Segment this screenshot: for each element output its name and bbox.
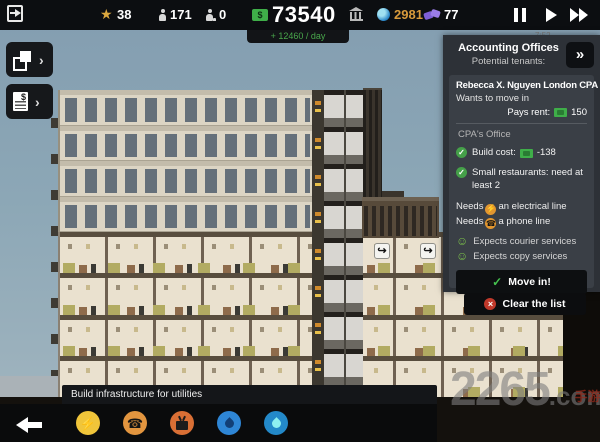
unit-type: CPA's Office — [458, 129, 587, 140]
money-icon — [554, 108, 567, 117]
chevron-right-icon: › — [39, 53, 44, 67]
unfinished-floors[interactable] — [58, 90, 312, 232]
clear-x-icon: × — [484, 298, 496, 310]
electricity-tool-button[interactable]: ⚡ — [76, 411, 100, 435]
concrete-floor[interactable] — [60, 197, 312, 233]
tv-icon — [176, 421, 188, 430]
mechanical-roof — [362, 197, 439, 238]
rent-label: Pays rent: — [507, 107, 550, 118]
need-row: Needs☎a phone line — [456, 215, 587, 230]
scaffolding — [51, 92, 58, 397]
elevator-shaft[interactable] — [312, 90, 363, 397]
water-tool-button[interactable] — [217, 411, 241, 435]
tenant-status: Wants to move in — [456, 93, 587, 104]
need-prefix: Needs — [456, 201, 483, 212]
play-button[interactable] — [546, 8, 557, 22]
site-watermark: 2265.com 手游网 — [450, 362, 600, 417]
panel-subtitle: Potential tenants: — [449, 56, 568, 67]
need-prefix: Needs — [456, 216, 483, 227]
influence-value: 2981 — [394, 7, 423, 22]
population-icon — [158, 9, 167, 21]
money-icon — [520, 149, 533, 158]
finance-panel-button[interactable]: › — [6, 84, 53, 119]
bank-icon[interactable] — [350, 12, 363, 21]
chevron-right-icon: › — [35, 95, 40, 109]
exit-button[interactable] — [7, 5, 23, 22]
smiley-icon: ☺ — [456, 251, 468, 262]
game-screen: ↪ ↪ ★ 38 171 0 $ 73540 2981 77 7:52 + 12… — [0, 0, 600, 442]
fast-forward-button[interactable] — [570, 8, 588, 22]
elevator-doors — [324, 90, 363, 397]
rent-value: 150 — [571, 107, 587, 118]
back-button[interactable] — [16, 417, 42, 433]
annex-tower — [363, 88, 382, 200]
watermark-cn: 手游网 — [574, 386, 600, 405]
income-per-day: + 12460 / day — [247, 30, 349, 43]
check-circle-icon: ✓ — [456, 167, 467, 178]
population-value: 171 — [170, 7, 192, 22]
needs-list: Needs⚡an electrical line Needs☎a phone l… — [456, 200, 587, 229]
divider — [456, 123, 587, 124]
tenant-rent: Pays rent: 150 — [456, 107, 587, 118]
prestige-value: 38 — [117, 7, 131, 22]
need-item: a phone line — [498, 216, 550, 227]
tenant-name: Rebecca X. Nguyen London CPA — [456, 80, 587, 91]
smiley-icon: ☺ — [456, 236, 468, 247]
cable-tv-tool-button[interactable] — [170, 411, 194, 435]
build-cost-label: Build cost: — [472, 147, 516, 159]
deals-handshake-icon — [424, 8, 441, 21]
move-in-label: Move in! — [508, 276, 551, 288]
build-cost-value: -138 — [537, 147, 556, 159]
clear-list-label: Clear the list — [502, 298, 565, 310]
vacancy-sign-icon[interactable]: ↪ — [420, 243, 436, 259]
phone-icon: ☎ — [485, 218, 496, 229]
need-row: Needs⚡an electrical line — [456, 200, 587, 215]
electricity-icon: ⚡ — [485, 204, 496, 215]
tenant-panel: Accounting Offices Potential tenants: » … — [443, 35, 600, 292]
deals-value: 77 — [444, 7, 458, 22]
exit-door-icon — [7, 5, 23, 22]
floors-panel-button[interactable]: › — [6, 42, 53, 77]
influence-orb-icon — [377, 8, 390, 21]
concrete-floor[interactable] — [60, 161, 312, 197]
expect-text: Expects copy services — [473, 251, 567, 262]
phone-tool-button[interactable]: ☎ — [123, 411, 147, 435]
invoice-icon — [13, 92, 28, 111]
water-drop-icon — [223, 417, 236, 430]
phone-icon: ☎ — [127, 417, 143, 430]
requirement-row: ✓ Small restaurants: need at least 2 — [456, 167, 587, 192]
requirement-text: Small restaurants: need at least 2 — [472, 167, 587, 192]
prestige-star-icon: ★ — [100, 7, 113, 21]
elevator-call-lights — [312, 90, 324, 397]
expect-row: ☺ Expects courier services — [456, 236, 587, 247]
pause-button[interactable] — [514, 8, 526, 22]
move-in-button[interactable]: ✓ Move in! — [456, 270, 587, 294]
expand-panel-button[interactable]: » — [566, 42, 594, 68]
build-cost-row: ✓ Build cost: -138 — [456, 147, 587, 159]
flame-icon — [270, 417, 283, 430]
check-icon: ✓ — [492, 275, 502, 289]
concrete-floor[interactable] — [60, 90, 312, 126]
vacancy-sign-icon[interactable]: ↪ — [374, 243, 390, 259]
concrete-floor[interactable] — [60, 126, 312, 162]
money-icon: $ — [252, 9, 268, 21]
watermark-number: 2265 — [450, 363, 549, 416]
tenant-card: Rebecca X. Nguyen London CPA Wants to mo… — [449, 75, 594, 288]
workers-value: 0 — [219, 7, 226, 22]
toolbar-tooltip: Build infrastructure for utilities — [62, 385, 437, 404]
layers-icon — [13, 51, 32, 69]
gas-tool-button[interactable] — [264, 411, 288, 435]
top-bar: ★ 38 171 0 $ 73540 2981 77 7:52 — [0, 0, 600, 30]
expect-text: Expects courier services — [473, 236, 576, 247]
bolt-icon: ⚡ — [80, 417, 96, 430]
workers-icon — [205, 9, 214, 21]
expect-row: ☺ Expects copy services — [456, 251, 587, 262]
clear-list-button[interactable]: × Clear the list — [464, 293, 586, 315]
panel-title: Accounting Offices — [449, 42, 568, 54]
money-value: 73540 — [272, 2, 336, 28]
check-circle-icon: ✓ — [456, 147, 467, 158]
need-item: an electrical line — [498, 201, 566, 212]
